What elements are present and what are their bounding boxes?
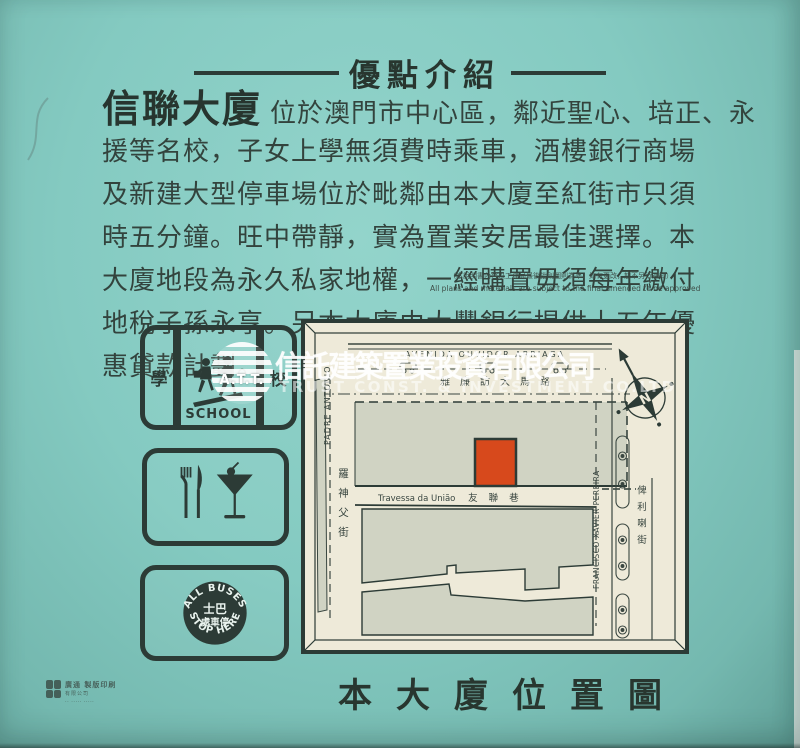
printer-logo xyxy=(46,680,61,698)
printer-info: ·· ····· ····· xyxy=(65,699,116,705)
printer-text: 廣通 製版印刷 有限公司 ·· ····· ····· xyxy=(65,680,116,705)
street-label-avenida-en: AVENIDA OUVIDOR ARRIAGA xyxy=(360,350,610,359)
map-caption: 本大廈位置圖 xyxy=(300,668,700,717)
printer-name: 廣通 製版印刷 xyxy=(65,680,116,690)
map-drawing: N xyxy=(300,318,690,655)
street-label-travessa-en: Travessa da União xyxy=(378,494,455,504)
disclaimer: （本說明書內容以工務局最後批則圖則為準，如有更改，恕不另行通知） All pla… xyxy=(430,271,692,293)
street-label-travessa: Travessa da União 友聯巷 xyxy=(378,490,530,504)
school-sign-center: SCHOOL xyxy=(181,330,256,425)
location-map: N AVENIDA OUVIDOR ARRIAGA 雅廉訪大馬路 PADRE A… xyxy=(300,318,690,655)
intro-line: 時五分鐘。旺中帶靜，實為置業安居最佳選擇。本 xyxy=(102,217,712,260)
title-rule-left xyxy=(194,71,339,75)
building-name: 信聯大廈 xyxy=(102,87,262,131)
street-label-francisco-zh: 俾利喇街 xyxy=(633,485,647,551)
school-caption: SCHOOL xyxy=(185,408,251,421)
printer-name2: 有限公司 xyxy=(65,690,116,697)
intro-line-text: 位於澳門市中心區，鄰近聖心、培正、永 xyxy=(270,99,756,129)
school-char-left: 學 xyxy=(145,330,173,425)
street-label-avenida-zh: 雅廉訪大馬路 xyxy=(400,373,590,388)
pencil-mark xyxy=(16,92,58,176)
sign-divider xyxy=(173,330,181,425)
printer-credit: 廣通 製版印刷 有限公司 ·· ····· ····· xyxy=(46,680,116,705)
scan-edge-right xyxy=(794,350,800,748)
bus-center-bottom-text: 處車停 xyxy=(200,617,229,629)
leaflet: 優點介紹 信聯大廈位於澳門市中心區，鄰近聖心、培正、永 援等名校，子女上學無須費… xyxy=(0,0,800,748)
street-label-travessa-zh: 友聯巷 xyxy=(468,493,530,504)
school-char-right: 校 xyxy=(264,330,292,425)
intro-line: 信聯大廈位於澳門市中心區，鄰近聖心、培正、永 xyxy=(102,88,712,131)
school-sign: 學 SCHOOL 校 xyxy=(140,325,297,430)
title-rule-right xyxy=(511,71,606,75)
disclaimer-en: All plans and materials are subject to t… xyxy=(430,284,692,293)
disclaimer-zh: （本說明書內容以工務局最後批則圖則為準，如有更改，恕不另行通知） xyxy=(430,271,692,281)
bus-center-top-text: 士巴 xyxy=(203,602,227,616)
intro-line: 及新建大型停車場位於毗鄰由本大廈至紅街市只須 xyxy=(102,174,712,217)
children-crossing-icon xyxy=(191,356,247,408)
sign-divider xyxy=(256,330,264,425)
intro-line: 援等名校，子女上學無須費時乘車，酒樓銀行商場 xyxy=(102,131,712,174)
fork-knife-martini-icon xyxy=(160,461,272,533)
street-label-padre-en: PADRE ANTONIO xyxy=(323,366,332,445)
street-label-padre-zh: 羅神父街 xyxy=(336,468,351,546)
bus-stop-sign: ALL BUSES STOP HERE 士巴 處車停 xyxy=(140,565,289,661)
building-marker-red xyxy=(475,439,516,486)
street-label-francisco-en: FRANCISCO XAVIER PEREIRA xyxy=(592,470,601,589)
restaurant-bar-sign xyxy=(142,448,289,546)
bus-stop-circle-icon: ALL BUSES STOP HERE 士巴 處車停 xyxy=(177,575,253,651)
scan-edge-bottom xyxy=(0,743,800,748)
